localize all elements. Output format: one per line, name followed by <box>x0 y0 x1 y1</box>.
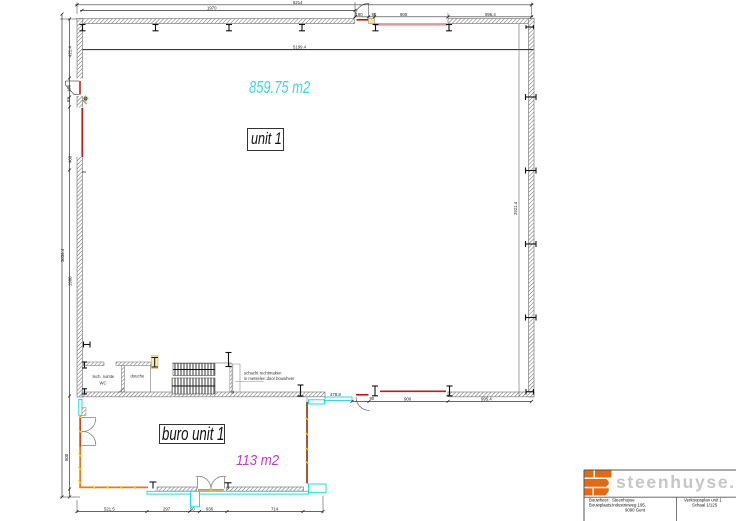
svg-text:1980: 1980 <box>68 276 73 286</box>
svg-text:Schaal 1/125: Schaal 1/125 <box>692 503 718 508</box>
svg-text:190: 190 <box>67 84 72 92</box>
svg-text:82: 82 <box>66 97 71 102</box>
svg-text:90: 90 <box>372 12 377 17</box>
svg-text:936: 936 <box>206 506 214 511</box>
svg-text:995.4: 995.4 <box>481 396 492 401</box>
svg-text:Bouwplaats:: Bouwplaats: <box>589 503 612 508</box>
svg-text:in metselen door bouwheer: in metselen door bouwheer <box>244 376 295 381</box>
svg-text:900: 900 <box>404 396 412 401</box>
svg-text:M: M <box>231 391 234 395</box>
svg-text:995.4: 995.4 <box>485 12 496 17</box>
svg-text:297: 297 <box>163 506 171 511</box>
svg-text:521.5: 521.5 <box>104 506 115 511</box>
svg-text:714: 714 <box>271 506 279 511</box>
svg-text:douche: douche <box>131 374 145 379</box>
svg-text:tech. ruimte: tech. ruimte <box>93 374 116 379</box>
svg-text:478.8: 478.8 <box>330 392 341 397</box>
svg-text:5214: 5214 <box>293 0 303 5</box>
svg-text:schacht rechtmaken: schacht rechtmaken <box>244 371 282 376</box>
svg-text:900: 900 <box>400 12 408 17</box>
svg-text:190: 190 <box>356 12 364 17</box>
svg-text:2921.4: 2921.4 <box>513 201 518 215</box>
svg-text:90: 90 <box>370 396 375 401</box>
svg-text:5199.4: 5199.4 <box>293 44 307 49</box>
svg-text:90: 90 <box>190 506 195 511</box>
svg-text:9090 Gent: 9090 Gent <box>625 508 646 513</box>
svg-text:1970: 1970 <box>207 6 217 11</box>
svg-text:400: 400 <box>68 155 73 163</box>
svg-text:WC: WC <box>100 381 107 386</box>
svg-text:600: 600 <box>64 453 69 461</box>
svg-text:3036.4: 3036.4 <box>60 248 65 262</box>
svg-text:421.4: 421.4 <box>68 46 73 57</box>
